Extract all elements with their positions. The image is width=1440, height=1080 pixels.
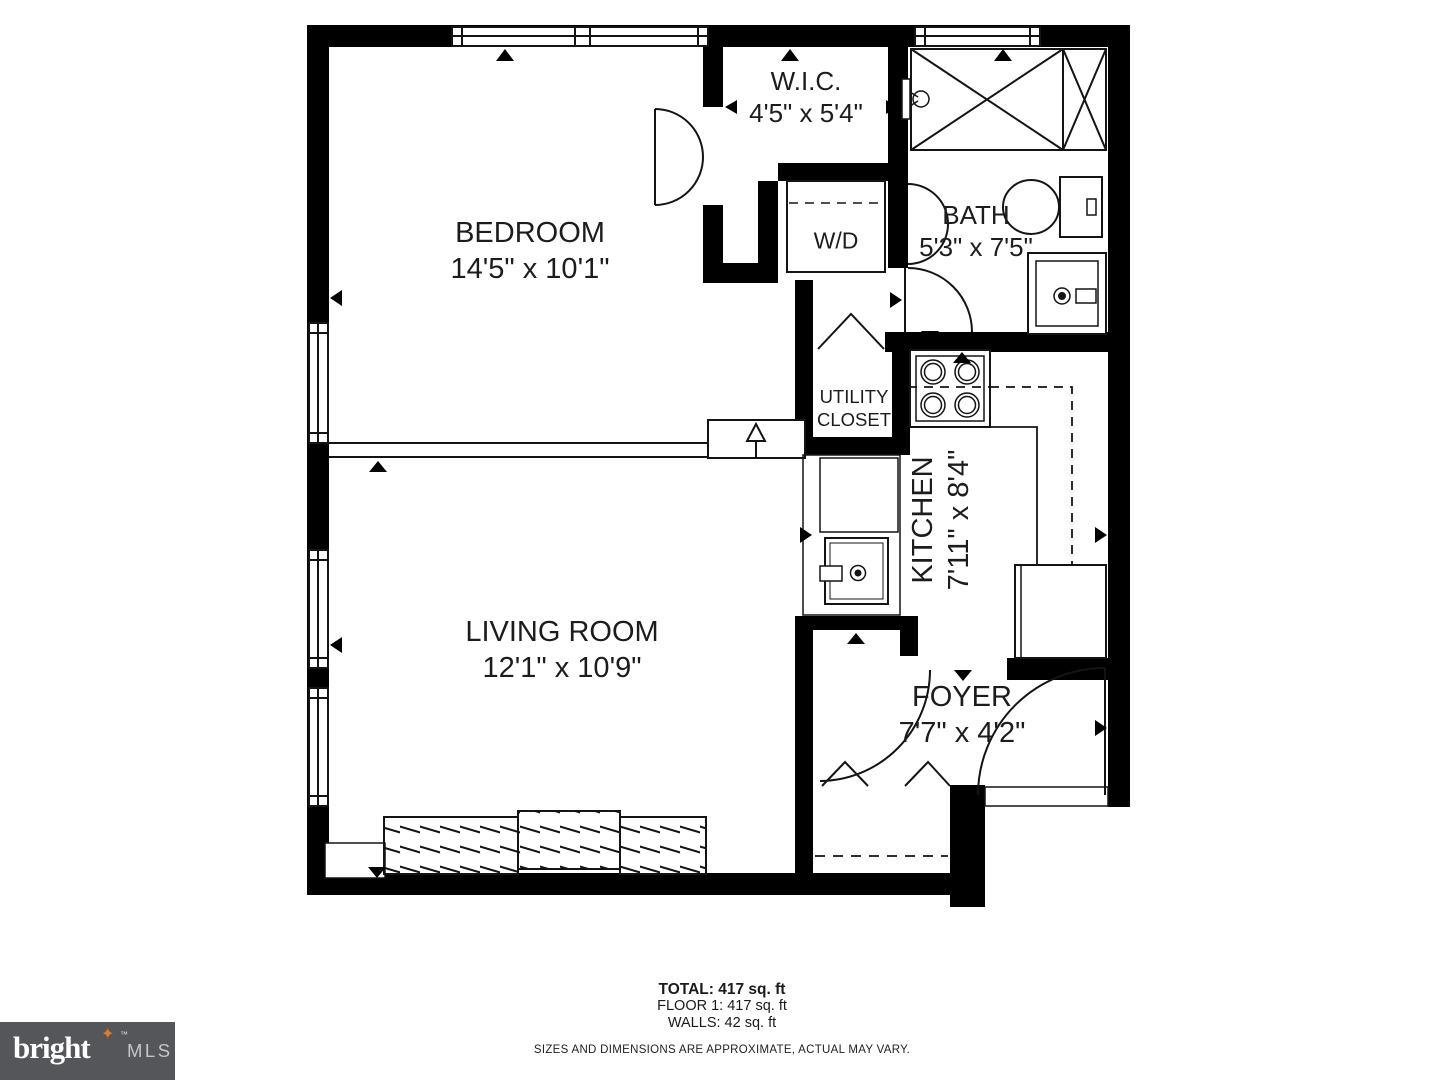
kitchen-label: KITCHEN 7'11" x 8'4"	[906, 450, 978, 591]
entry-threshold	[985, 787, 1108, 806]
utility-line1: UTILITY	[817, 386, 891, 409]
kitchen-sink-icon	[803, 455, 900, 615]
bedroom-name: BEDROOM	[450, 216, 609, 252]
refrigerator-icon	[1015, 565, 1106, 658]
living-room-name: LIVING ROOM	[465, 615, 658, 651]
bath-label: BATH 5'3" x 7'5"	[919, 199, 1033, 263]
wic-dims: 4'5" x 5'4"	[749, 97, 863, 129]
floor-plan: BEDROOM 14'5" x 10'1" W.I.C. 4'5" x 5'4"…	[0, 0, 1440, 1080]
stove-icon	[910, 350, 990, 427]
hatched-area	[384, 811, 706, 874]
washer-dryer-name: W/D	[814, 227, 859, 256]
total-area: TOTAL: 417 sq. ft	[659, 981, 786, 999]
utility-closet-label: UTILITY CLOSET	[817, 386, 891, 432]
living-room-label: LIVING ROOM 12'1" x 10'9"	[465, 615, 658, 687]
utility-line2: CLOSET	[817, 409, 891, 432]
floor-plan-drawing	[0, 0, 1440, 1080]
bath-name: BATH	[919, 199, 1033, 231]
kitchen-name: KITCHEN	[906, 450, 942, 591]
kitchen-dims: 7'11" x 8'4"	[942, 450, 978, 591]
living-room-dims: 12'1" x 10'9"	[465, 651, 658, 687]
window-top-bedroom	[452, 27, 708, 46]
window-left-living-upper	[309, 550, 328, 668]
utility-closet-bifold	[818, 314, 884, 349]
washer-dryer-label: W/D	[814, 227, 859, 256]
bedroom-label: BEDROOM 14'5" x 10'1"	[450, 216, 609, 288]
bathroom-sink-icon	[1028, 253, 1106, 334]
partition-bedroom-living	[329, 420, 805, 458]
window-left-living-lower	[309, 688, 328, 806]
window-left-bedroom	[309, 323, 328, 443]
bath-dims: 5'3" x 7'5"	[919, 231, 1033, 263]
wic-double-door	[655, 109, 703, 205]
walls	[307, 25, 1130, 907]
logo-trademark: ™	[120, 1030, 128, 1039]
bright-mls-logo: bright ✦ ™ MLS	[0, 1022, 175, 1080]
direction-markers	[330, 49, 1107, 878]
logo-brand-text: bright	[13, 1030, 90, 1066]
logo-suffix-text: MLS	[127, 1040, 173, 1062]
foyer-label: FOYER 7'7" x 4'2"	[899, 680, 1026, 752]
walls-area: WALLS: 42 sq. ft	[668, 1015, 776, 1031]
wic-label: W.I.C. 4'5" x 5'4"	[749, 65, 863, 129]
foyer-dims: 7'7" x 4'2"	[899, 716, 1026, 752]
window-top-shower	[915, 27, 1040, 46]
bedroom-dims: 14'5" x 10'1"	[450, 252, 609, 288]
logo-star-icon: ✦	[101, 1024, 114, 1044]
wic-name: W.I.C.	[749, 65, 863, 97]
foyer-name: FOYER	[899, 680, 1026, 716]
floor1-area: FLOOR 1: 417 sq. ft	[657, 998, 787, 1014]
shower-icon	[902, 49, 1106, 150]
disclaimer-text: SIZES AND DIMENSIONS ARE APPROXIMATE, AC…	[534, 1044, 910, 1056]
